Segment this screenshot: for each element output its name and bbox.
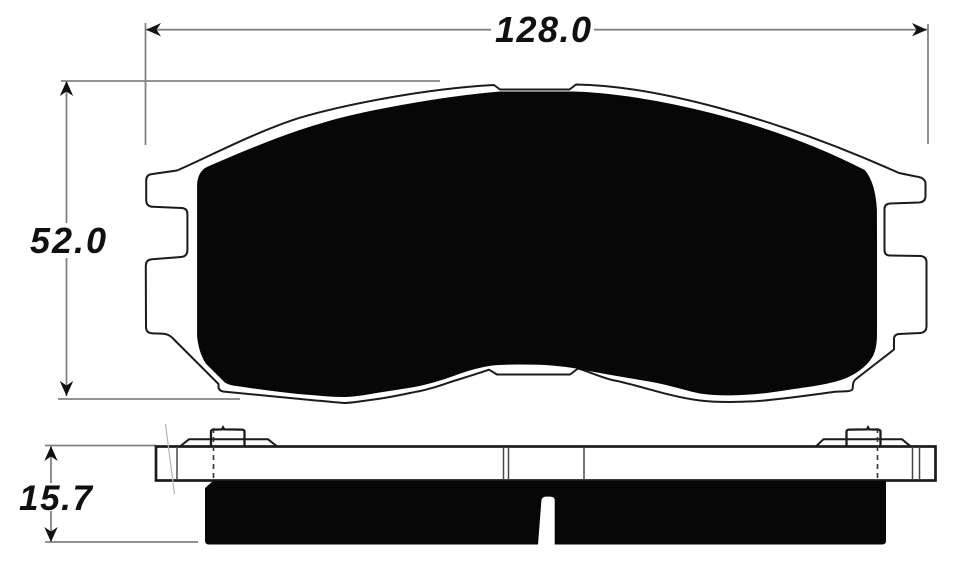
svg-text:15.7: 15.7 <box>19 479 94 518</box>
svg-text:52.0: 52.0 <box>30 220 106 261</box>
svg-text:128.0: 128.0 <box>495 9 591 50</box>
